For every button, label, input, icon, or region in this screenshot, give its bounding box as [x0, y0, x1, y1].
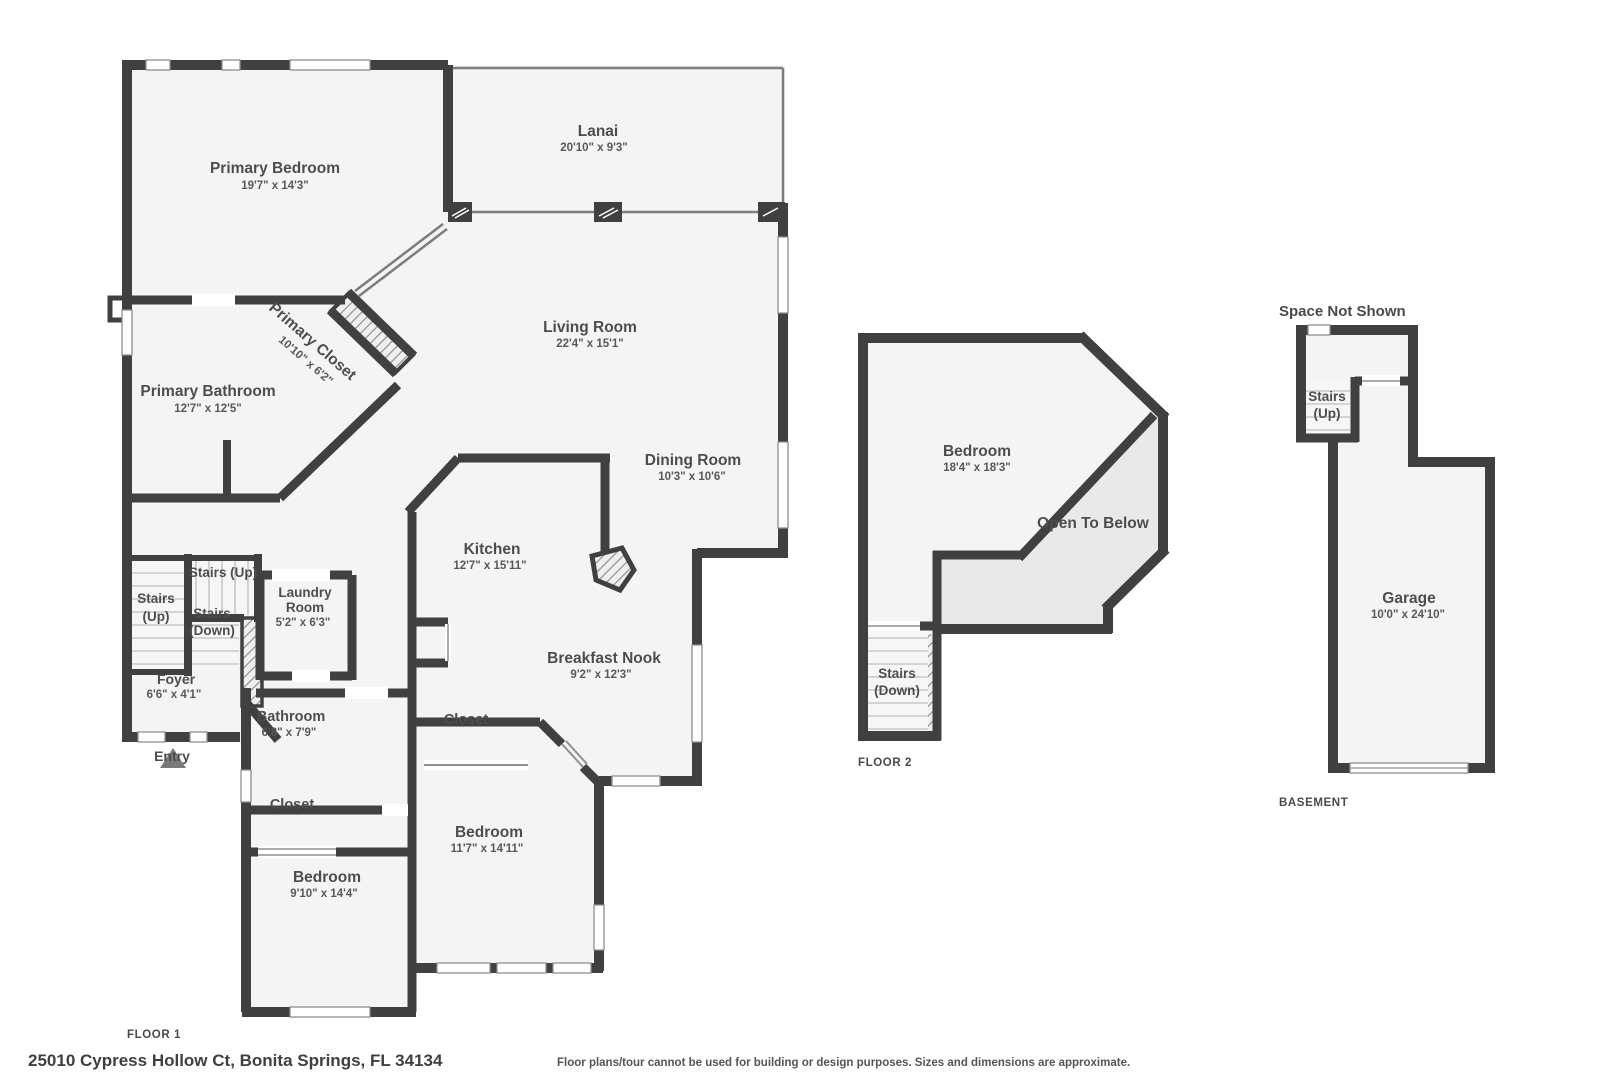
- basement-plan: Space Not Shown Stairs (Up) Garage 10'0"…: [1279, 303, 1495, 809]
- floor2-stairs-opening: [868, 621, 920, 631]
- label-entry: Entry: [154, 748, 190, 764]
- footer-disclaimer: Floor plans/tour cannot be used for buil…: [557, 1057, 1130, 1069]
- dims-laundry: 5'2" x 6'3": [276, 617, 331, 629]
- label-dining-room: Dining Room: [645, 452, 741, 469]
- label-bedroom-right: Bedroom: [455, 824, 523, 841]
- label-basement-stairs-line2: (Up): [1314, 406, 1341, 421]
- dims-breakfast-nook: 9'2" x 12'3": [570, 669, 631, 681]
- dims-kitchen: 12'7" x 15'11": [453, 560, 526, 572]
- label-breakfast-nook: Breakfast Nook: [547, 650, 661, 667]
- dims-floor2-bedroom: 18'4" x 18'3": [943, 462, 1011, 474]
- label-floor2-stairs-line2: (Down): [874, 683, 920, 698]
- label-lanai: Lanai: [578, 123, 618, 140]
- label-stairs-up-line1: Stairs: [137, 591, 175, 606]
- label-bathroom: Bathroom: [257, 709, 325, 725]
- label-stairs-down-line1: Stairs: [193, 606, 231, 621]
- label-basement-stairs-line1: Stairs: [1308, 389, 1346, 404]
- floor1-tag: FLOOR 1: [127, 1029, 181, 1041]
- basement-tag: BASEMENT: [1279, 797, 1348, 809]
- dims-foyer: 6'6" x 4'1": [147, 689, 202, 701]
- label-foyer: Foyer: [157, 671, 196, 687]
- label-laundry-line2: Room: [286, 600, 324, 615]
- label-floor2-stairs-line1: Stairs: [878, 666, 916, 681]
- label-closet-right: Closet: [444, 712, 488, 728]
- dims-dining-room: 10'3" x 10'6": [658, 471, 726, 483]
- footer: 25010 Cypress Hollow Ct, Bonita Springs,…: [28, 1051, 1130, 1070]
- label-open-to-below: Open To Below: [1037, 515, 1150, 532]
- label-kitchen: Kitchen: [464, 541, 521, 558]
- floor-plan-page: Primary Bedroom 19'7" x 14'3" Lanai 20'1…: [0, 0, 1620, 1080]
- floor1-plan: Primary Bedroom 19'7" x 14'3" Lanai 20'1…: [110, 60, 788, 1041]
- dims-bathroom: 6'8" x 7'9": [262, 727, 317, 739]
- dims-lanai: 20'10" x 9'3": [560, 142, 628, 154]
- dims-bedroom-right: 11'7" x 14'11": [451, 843, 524, 855]
- label-stairs-down-line2: (Down): [189, 623, 235, 638]
- dims-living-room: 22'4" x 15'1": [556, 338, 624, 350]
- label-primary-bedroom: Primary Bedroom: [210, 160, 340, 177]
- label-closet-left: Closet: [270, 797, 314, 813]
- label-garage: Garage: [1382, 590, 1436, 607]
- label-bedroom-left: Bedroom: [293, 869, 361, 886]
- floor2-plan: Bedroom 18'4" x 18'3" Open To Below Stai…: [858, 333, 1166, 769]
- footer-address: 25010 Cypress Hollow Ct, Bonita Springs,…: [28, 1051, 443, 1070]
- label-stairs-up-small: Stairs (Up): [189, 565, 257, 580]
- dims-primary-bathroom: 12'7" x 12'5": [174, 403, 242, 415]
- floor-plan-drawing: Primary Bedroom 19'7" x 14'3" Lanai 20'1…: [0, 0, 1620, 1080]
- dims-garage: 10'0" x 24'10": [1371, 609, 1445, 621]
- label-floor2-bedroom: Bedroom: [943, 443, 1011, 460]
- label-laundry-line1: Laundry: [278, 585, 332, 600]
- label-living-room: Living Room: [543, 319, 637, 336]
- floor2-tag: FLOOR 2: [858, 757, 912, 769]
- dims-primary-bedroom: 19'7" x 14'3": [241, 180, 309, 192]
- label-primary-bathroom: Primary Bathroom: [140, 383, 275, 400]
- dims-bedroom-left: 9'10" x 14'4": [290, 888, 358, 900]
- label-stairs-up-line2: (Up): [143, 609, 170, 624]
- label-space-not-shown: Space Not Shown: [1279, 303, 1406, 320]
